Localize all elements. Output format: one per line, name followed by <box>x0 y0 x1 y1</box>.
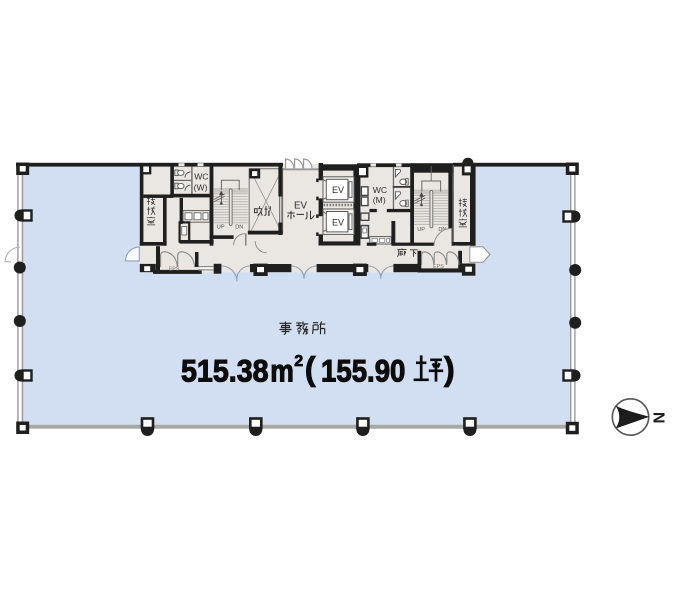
svg-text:EPS: EPS <box>169 266 180 272</box>
svg-text:EV: EV <box>332 217 344 227</box>
svg-text:UP: UP <box>417 227 425 233</box>
svg-text:): ) <box>444 351 455 388</box>
svg-text:(: ( <box>305 351 317 388</box>
svg-text:WC: WC <box>194 172 208 182</box>
svg-text:(M): (M) <box>373 195 386 205</box>
svg-text:155.90: 155.90 <box>321 352 405 388</box>
svg-text:515.38: 515.38 <box>181 352 269 388</box>
svg-text:EV: EV <box>294 201 308 212</box>
svg-text:2: 2 <box>294 353 303 370</box>
svg-text:(W): (W) <box>194 183 208 193</box>
svg-text:DN: DN <box>235 225 243 231</box>
svg-text:UP: UP <box>217 225 225 231</box>
svg-text:WC: WC <box>373 185 387 195</box>
svg-text:EV: EV <box>332 185 344 195</box>
svg-text:m: m <box>270 352 294 388</box>
svg-text:EPS: EPS <box>433 264 444 270</box>
svg-text:N: N <box>652 412 669 424</box>
